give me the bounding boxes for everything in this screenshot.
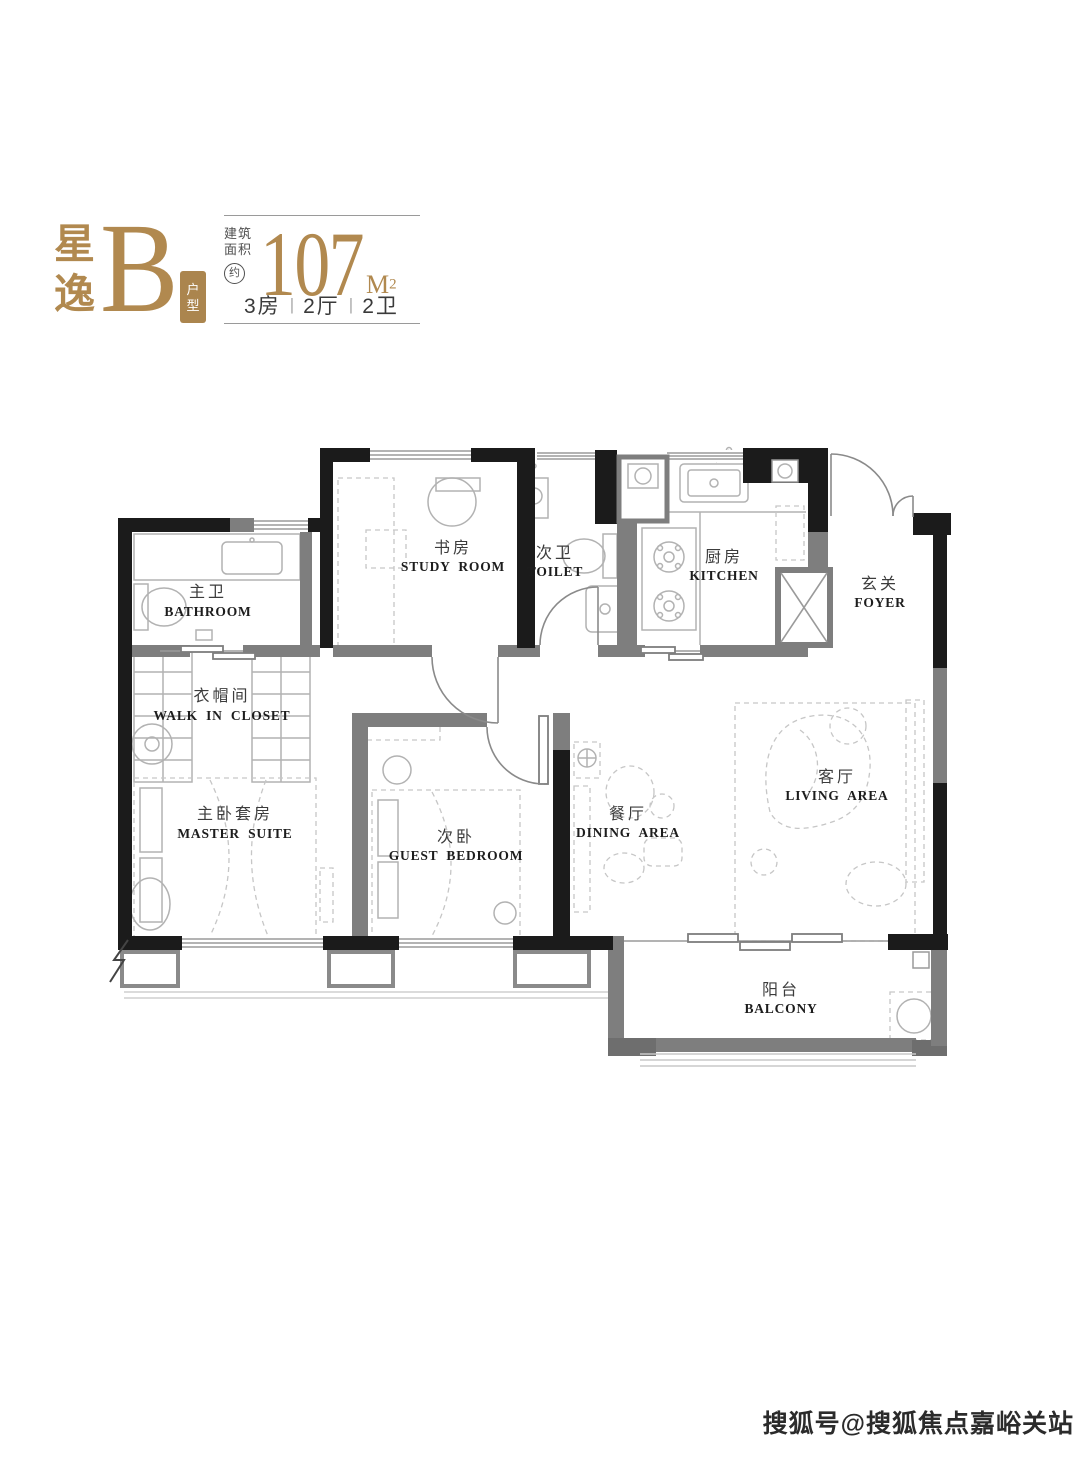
room-label-closet-cn: 衣帽间 [193, 687, 250, 705]
window-sills [124, 992, 608, 998]
room-label-foyer-en: FOYER [854, 595, 905, 610]
room-label-foyer-cn: 玄关 [861, 575, 899, 593]
room-label-living-en: LIVING AREA [785, 788, 888, 803]
room-label-kitchen-cn: 厨房 [705, 548, 743, 566]
entry-double-door [831, 454, 913, 517]
kitchen-sliding-door [641, 647, 703, 660]
room-label-balcony-cn: 阳台 [762, 981, 800, 999]
room-label-dining-cn: 餐厅 [609, 805, 647, 823]
room-label-toilet-en: TOILET [527, 564, 583, 579]
room-label-kitchen-en: KITCHEN [689, 568, 758, 583]
room-label-study-cn: 书房 [434, 539, 472, 557]
room-label-dining-en: DINING AREA [576, 825, 680, 840]
room-label-balcony-en: BALCONY [744, 1001, 817, 1016]
room-label-guest-cn: 次卧 [437, 828, 475, 846]
toilet-door [540, 587, 598, 645]
balcony-washer [890, 992, 938, 1040]
watermark: 搜狐号@搜狐焦点嘉峪关站 [763, 1404, 1074, 1440]
room-label-toilet-cn: 次卫 [536, 544, 574, 562]
floorplan-drawing: 主卫 BATHROOM 衣帽间 WALK IN CLOSET 主卧套房 MAST… [0, 0, 1080, 1465]
guest-bedroom-door [487, 716, 548, 784]
room-label-study-en: STUDY ROOM [401, 559, 505, 574]
living-furniture [735, 700, 924, 941]
room-label-living-cn: 客厅 [818, 768, 856, 786]
room-label-master-cn: 主卧套房 [197, 805, 273, 823]
room-label-bathroom-en: BATHROOM [164, 604, 251, 619]
room-label-master-en: MASTER SUITE [177, 826, 292, 841]
room-label-bathroom-cn: 主卫 [189, 583, 227, 601]
bay-windows [122, 952, 589, 986]
utility-shaft [778, 570, 830, 645]
room-label-guest-en: GUEST BEDROOM [389, 848, 524, 863]
room-label-closet-en: WALK IN CLOSET [154, 708, 291, 723]
